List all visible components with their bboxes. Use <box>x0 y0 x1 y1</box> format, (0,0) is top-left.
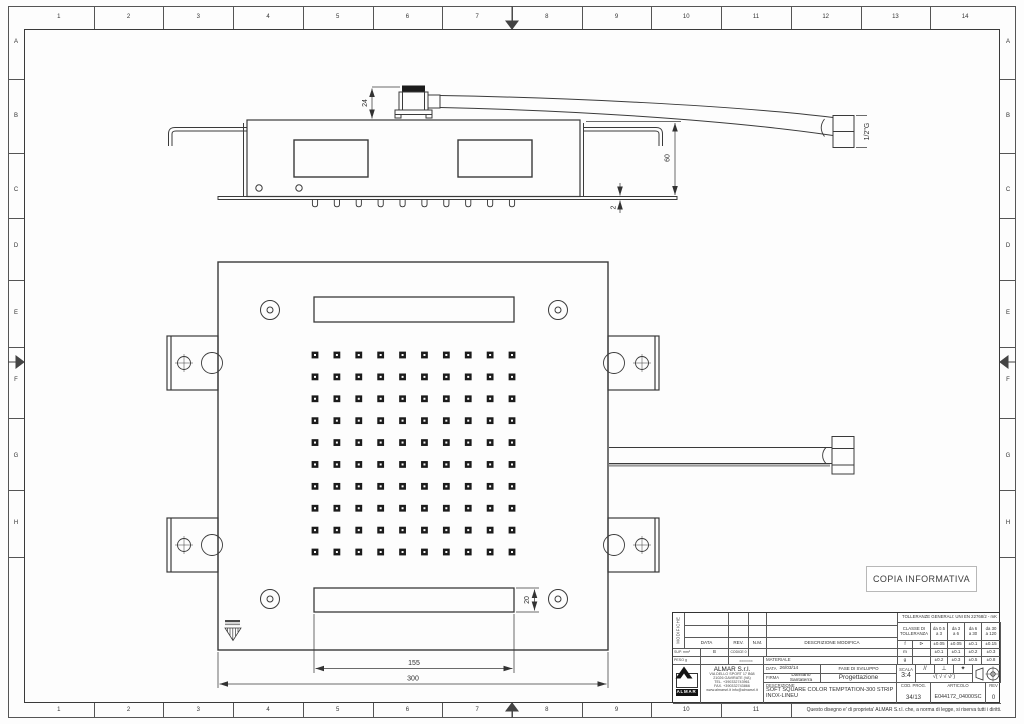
modification-empty-cell <box>749 613 767 626</box>
tolerance-value: ±0.2 <box>965 649 982 657</box>
dim-60-label: 60 <box>665 154 672 162</box>
modification-empty-cell <box>701 657 729 665</box>
side-nozzle-row <box>312 200 514 207</box>
side-nozzle <box>334 200 339 207</box>
range-to: a 3 <box>936 632 942 637</box>
housing-window-left <box>294 140 368 177</box>
signature-cell: FIRMA Damiano Santaterra <box>764 674 821 683</box>
modification-empty-cell <box>767 649 898 657</box>
tolerance-range-header: da 3a 6 <box>948 623 965 641</box>
bottom-light-strip-slot <box>314 588 514 612</box>
thread-size-label: 1/2"G <box>864 123 871 141</box>
dim-24-label: 24 <box>362 99 369 107</box>
article-value: E044172_04000SC <box>934 695 981 701</box>
tolerance-class-letter: g <box>898 657 913 665</box>
modification-empty-cell <box>729 613 749 626</box>
sup-label: SUP. mm² <box>673 649 701 657</box>
title-block: MODIFICHEDATAREV.N.M.DESCRIZIONE MODIFIC… <box>672 612 1000 703</box>
side-nozzle <box>378 200 383 207</box>
copia-informativa-stamp: COPIA INFORMATIVA <box>866 566 977 592</box>
article-label: ARTICOLO <box>947 684 968 688</box>
top-light-strip-slot <box>314 297 514 322</box>
first-angle-projection-icon <box>973 665 1001 683</box>
mounting-brackets <box>167 336 659 572</box>
front-view <box>167 262 854 650</box>
scale-cell: SCALA 3:4 <box>897 665 916 683</box>
revision-cell: REV 0 <box>986 683 1001 704</box>
tolerance-class-symbol: ⊳ <box>913 641 931 649</box>
dim-2-label: 2 <box>611 205 618 209</box>
mounting-spring-left <box>169 128 248 147</box>
nozzle-grid <box>312 352 516 556</box>
side-nozzle <box>509 200 514 207</box>
housing-hole <box>256 185 262 191</box>
parallelism-symbol: // <box>916 665 935 674</box>
tolerance-value: ±0.1 <box>931 649 948 657</box>
signature-label: FIRMA <box>766 676 779 680</box>
modification-empty-cell <box>729 626 749 638</box>
modification-empty-cell <box>685 626 729 638</box>
dim-300-label: 300 <box>407 676 419 683</box>
modifications-side-label: MODIFICHE <box>673 613 685 649</box>
modification-header: N.M. <box>749 638 767 649</box>
tolerance-class-symbol <box>913 657 931 665</box>
side-view-dimensions <box>372 87 867 213</box>
phase-value-cell: Progettazione <box>821 674 897 683</box>
revision-value: 0 <box>992 695 995 701</box>
tolerance-value: ±0.05 <box>931 641 948 649</box>
surface-finish-symbols: √( √ √ √∕ ) <box>916 674 973 683</box>
front-supply-arm <box>609 437 854 475</box>
mounting-spring-right <box>584 128 663 147</box>
connector-cap <box>402 86 425 93</box>
side-nozzle <box>356 200 361 207</box>
housing-window-right <box>458 140 532 177</box>
company-web: www.almarsrl.it info@almarsrl.it <box>706 689 757 693</box>
sup-rev-value: B <box>701 649 729 657</box>
side-nozzle <box>488 200 493 207</box>
front-thread-fitting <box>832 437 854 475</box>
drawing-sheet: 12345678910111213141234567891011AABBCCDD… <box>0 0 1024 724</box>
modification-empty-cell <box>749 626 767 638</box>
modification-empty-cell <box>767 626 898 638</box>
projection-symbol-cell <box>973 665 1001 683</box>
modification-header: DATA <box>685 638 729 649</box>
modification-header: REV. <box>729 638 749 649</box>
description-cell: DESCRIZIONE SOFT SQUARE COLOR TEMPTATION… <box>764 683 897 704</box>
range-to: a 30 <box>969 632 977 637</box>
side-view <box>169 86 855 207</box>
side-nozzle <box>466 200 471 207</box>
range-to: a 6 <box>953 632 959 637</box>
tolerance-value: ±0.8 <box>982 657 1001 665</box>
position-symbol: ✦ <box>954 665 973 674</box>
project-code-value: 34/13 <box>906 695 921 701</box>
perpendicularity-symbol: ⊥ <box>935 665 954 674</box>
company-info-cell: ALMAR S.r.l. VIA DELLO SPORT 17 B68 2102… <box>701 665 764 704</box>
date-cell: DATA 26/03/14 <box>764 665 821 674</box>
scale-value: 3:4 <box>901 672 911 679</box>
signature-value: Damiano Santaterra <box>782 674 820 683</box>
peso-value: xxxxxxx <box>729 657 764 665</box>
dim-20-label: 20 <box>524 596 531 604</box>
tolerance-value: ±0.3 <box>982 649 1001 657</box>
description-value: SOFT SQUARE COLOR TEMPTATION-300 STRIP I… <box>766 688 894 700</box>
revision-label: REV <box>989 684 998 688</box>
project-code-cell: COD. PROG. 34/13 <box>897 683 931 704</box>
tolerance-class-letter: f <box>898 641 913 649</box>
modification-empty-cell <box>685 613 729 626</box>
tolerance-title: TOLLERANZE GENERALI: UNI EN 22768/2 - mK <box>898 613 1001 623</box>
tolerance-value: ±0.1 <box>948 649 965 657</box>
tolerance-value: ±0.2 <box>931 657 948 665</box>
arm-neck <box>428 95 440 108</box>
modification-header: DESCRIZIONE MODIFICA <box>767 638 898 649</box>
modifications-table: MODIFICHEDATAREV.N.M.DESCRIZIONE MODIFIC… <box>673 613 898 665</box>
modification-empty-cell <box>767 613 898 626</box>
plate-brand-mark <box>225 620 241 641</box>
supply-arm-top-edge <box>440 96 833 118</box>
tolerance-class-label: CLASSE DI TOLLERANZA <box>898 623 931 641</box>
almar-logo-icon <box>676 673 698 688</box>
tolerance-class-symbol <box>913 649 931 657</box>
tolerance-value: ±0.15 <box>982 641 1001 649</box>
connector-body <box>399 92 428 110</box>
bracket-holes <box>175 353 651 556</box>
tolerance-range-header: da 30a 120 <box>982 623 1001 641</box>
tolerance-value: ±0.1 <box>965 641 982 649</box>
article-cell: ARTICOLO E044172_04000SC <box>931 683 986 704</box>
dim-155-label: 155 <box>408 660 420 667</box>
sup-code-value: CODICE 0 <box>729 649 749 657</box>
corner-screws <box>261 301 568 609</box>
tolerance-table: TOLLERANZE GENERALI: UNI EN 22768/2 - mK… <box>898 613 1001 665</box>
date-value: 26/03/14 <box>780 666 799 671</box>
almar-logo-text: ALMAR <box>676 689 698 696</box>
tolerance-class-letter: m <box>898 649 913 657</box>
phase-label-cell: FASE DI SVILUPPO <box>821 665 897 674</box>
side-view-dim-labels: 24 60 2 1/2"G <box>362 99 871 209</box>
date-label: DATA <box>766 667 777 671</box>
modification-empty-cell <box>749 649 767 657</box>
side-nozzle <box>444 200 449 207</box>
tolerance-value: ±0.3 <box>948 657 965 665</box>
tolerance-range-header: da 6a 30 <box>965 623 982 641</box>
side-nozzle <box>400 200 405 207</box>
project-code-label: COD. PROG. <box>901 684 926 688</box>
stamp-text: COPIA INFORMATIVA <box>873 574 970 584</box>
tolerance-value: ±0.5 <box>965 657 982 665</box>
side-nozzle <box>312 200 317 207</box>
connector-flange <box>395 110 432 115</box>
side-nozzle <box>422 200 427 207</box>
peso-label: PESO g <box>673 657 701 665</box>
property-note: Questo disegno e' di proprieta' ALMAR S.… <box>791 703 1016 718</box>
materiale-label: MATERIALE <box>764 657 898 665</box>
housing-hole <box>296 185 302 191</box>
tolerance-value: ±0.05 <box>948 641 965 649</box>
modifications-side-label-text: MODIFICHE <box>676 617 680 644</box>
tolerance-range-header: da 0.5a 3 <box>931 623 948 641</box>
company-logo-cell: ALMAR <box>673 665 701 704</box>
front-view-dim-labels: 20 155 300 <box>407 596 531 682</box>
range-to: a 120 <box>986 632 997 637</box>
